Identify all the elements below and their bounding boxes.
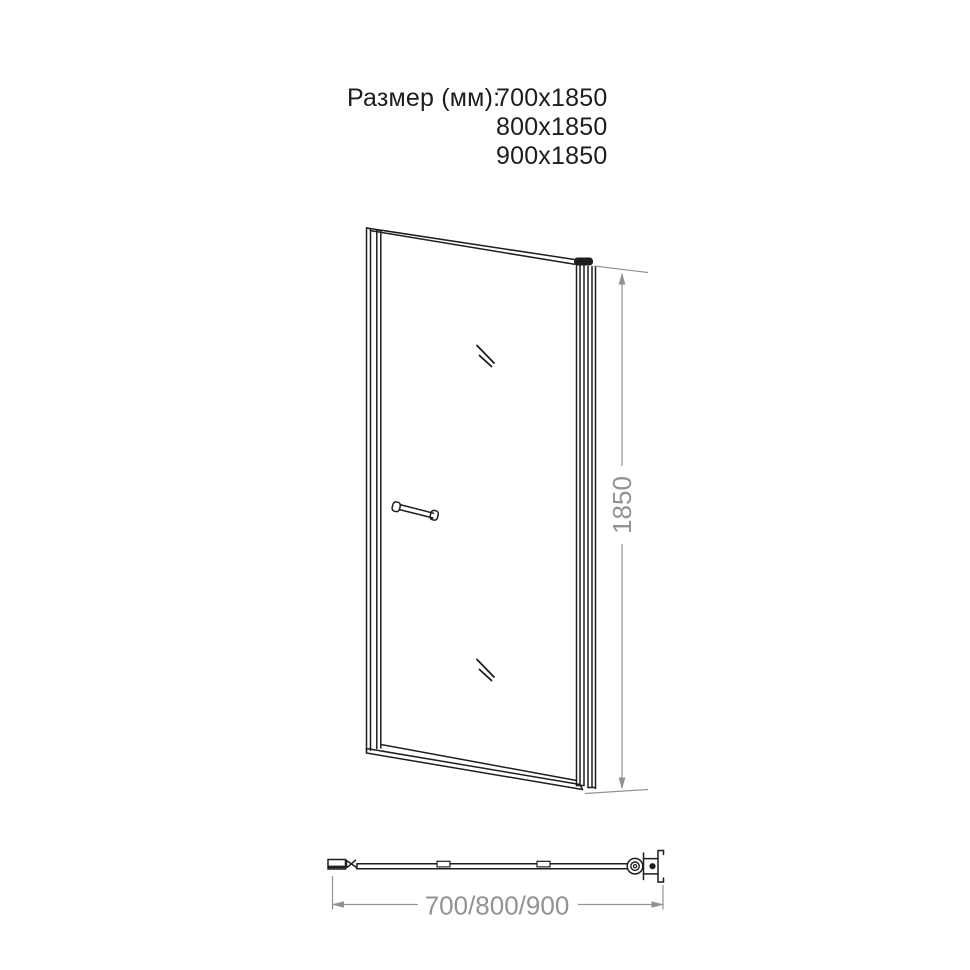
glass-top-edge (367, 228, 575, 264)
width-dimension-label: 700/800/900 (425, 891, 570, 921)
arrow-right-icon (652, 901, 665, 908)
break-mark (437, 861, 450, 867)
fixing-dot-icon (649, 863, 655, 869)
arrow-down-icon (619, 778, 626, 790)
shower-door-diagram: 1850 (0, 0, 970, 970)
front-view: 1850 (367, 228, 649, 794)
plan-glass-bar (357, 861, 628, 868)
glass-reflection-marks (477, 346, 494, 681)
plan-view: 700/800/900 (328, 851, 664, 921)
plan-hinge (627, 858, 643, 874)
width-dimension: 700/800/900 (332, 876, 665, 921)
right-profile (577, 264, 596, 789)
plan-right-wall-profile (644, 851, 664, 883)
left-wall-profile (367, 228, 381, 751)
break-mark (537, 861, 550, 867)
arrow-left-icon (332, 901, 345, 908)
height-dimension: 1850 (585, 266, 648, 794)
height-dimension-label: 1850 (607, 476, 637, 534)
arrow-up-icon (619, 273, 626, 285)
plan-left-wall-profile (328, 860, 357, 870)
bottom-threshold (367, 745, 583, 790)
right-profile-top-cap (574, 258, 593, 266)
door-handle-icon (391, 501, 439, 521)
